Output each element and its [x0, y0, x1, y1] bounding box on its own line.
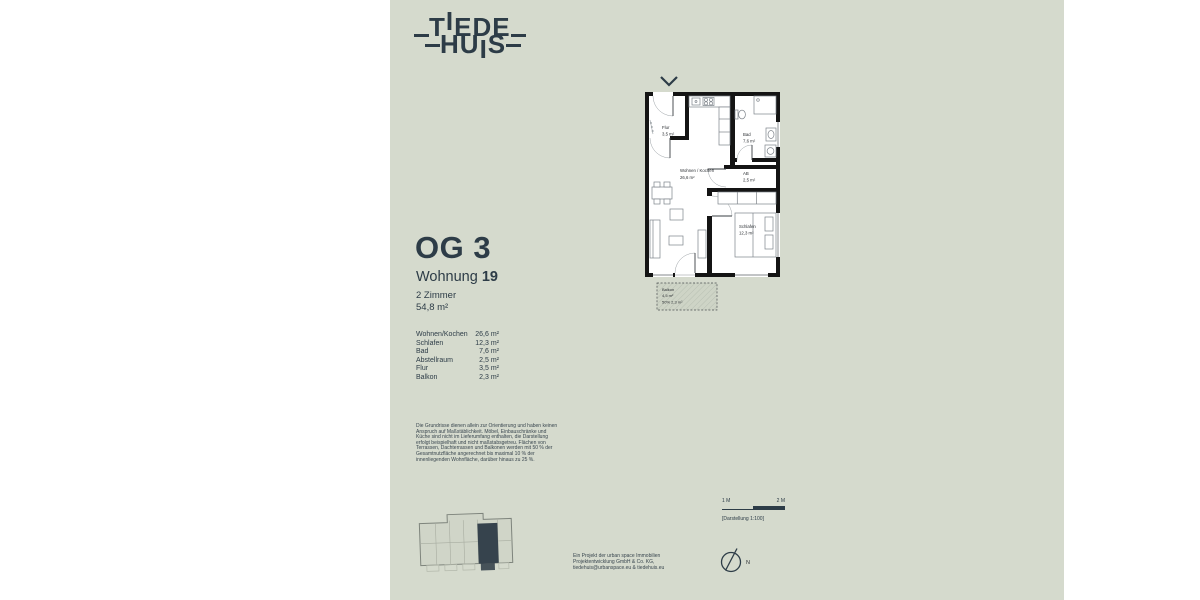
entrance-arrow-icon: [661, 77, 677, 85]
armchair-symbol: [670, 209, 683, 220]
apartment-floorplan: Balkon 4,5 m² 50% 2,3 m²: [640, 72, 790, 315]
table-row: Wohnen/Kochen26,6 m²: [416, 331, 499, 340]
credit-line: tiedehuis@urbanspace.eu & tiedehuis.eu: [573, 566, 664, 572]
north-compass-icon: N: [717, 545, 761, 581]
logo-letter-lowered: I: [480, 36, 488, 62]
balkon-name: Balkon: [662, 287, 674, 292]
scale-left-label: 1 M: [722, 499, 730, 504]
room-label: Bad: [416, 348, 428, 357]
rooms-count: 2 Zimmer: [416, 290, 456, 301]
bad-name: Bad: [743, 132, 751, 137]
balkon-share: 50% 2,3 m²: [662, 300, 683, 305]
wardrobe-symbol: [718, 192, 776, 204]
scale-bar: 1 M 2 M [Darstellung 1:100]: [722, 499, 785, 522]
scale-caption: [Darstellung 1:100]: [722, 516, 785, 522]
room-label: Schlafen: [416, 340, 443, 349]
wohnen-name: Wohnen / Kochen: [680, 168, 715, 173]
sideboard-symbol: [698, 230, 706, 258]
north-label: N: [746, 560, 750, 566]
room-area: 2,5 m²: [479, 357, 499, 366]
shower-symbol: [754, 96, 776, 114]
table-row: Schlafen12,3 m²: [416, 340, 499, 349]
logo-dash-icon: [414, 34, 429, 38]
room-label: Balkon: [416, 374, 437, 383]
table-row: Balkon2,3 m²: [416, 374, 499, 383]
scale-segment-1: [722, 506, 753, 510]
balkon-area: 4,5 m²: [662, 293, 674, 298]
scale-labels: 1 M 2 M: [722, 499, 785, 504]
room-label: Abstellraum: [416, 357, 453, 366]
floorplan-sheet: TIEDE HUIS OG 3 Wohnung 19 2 Zimmer 54,8…: [0, 0, 1200, 600]
sofa-symbol: [650, 220, 660, 258]
building-keyplan: [412, 502, 524, 584]
ab-name: AB: [743, 171, 749, 176]
unit-title: Wohnung 19: [416, 269, 498, 285]
logo-dash-icon: [511, 34, 526, 38]
logo-dash-icon: [425, 44, 440, 48]
room-area: 3,5 m²: [479, 365, 499, 374]
table-row: Bad7,6 m²: [416, 348, 499, 357]
ab-area: 2,5 m²: [743, 178, 756, 183]
room-balkon: Balkon 4,5 m² 50% 2,3 m²: [657, 283, 717, 310]
room-area: 26,6 m²: [475, 331, 499, 340]
room-label: Wohnen/Kochen: [416, 331, 468, 340]
logo-dash-icon: [506, 44, 521, 48]
table-row: Flur3,5 m²: [416, 365, 499, 374]
room-area: 12,3 m²: [475, 340, 499, 349]
schlafen-name: Schlafen: [739, 224, 756, 229]
logo-letter: S: [488, 31, 506, 57]
scale-segment-2: [753, 506, 785, 510]
total-area: 54,8 m²: [416, 302, 448, 313]
room-area: 2,3 m²: [479, 374, 499, 383]
tiedehuis-logo: TIEDE HUIS: [414, 14, 526, 57]
wohnen-area: 26,6 m²: [680, 175, 695, 180]
schlafen-area: 12,3 m²: [739, 231, 754, 236]
toilet-symbol: [735, 110, 745, 119]
disclaimer-text: Die Grundrisse dienen allein zur Orienti…: [416, 424, 559, 463]
room-label: Flur: [416, 365, 428, 374]
project-credit: Ein Projekt der urban space Immobilien P…: [573, 554, 664, 572]
flur-name: Flur: [662, 125, 670, 130]
scale-right-label: 2 M: [777, 499, 785, 504]
logo-letter-raised: I: [446, 8, 454, 34]
bath-sink-symbol: [766, 128, 776, 141]
room-area: 7,6 m²: [479, 348, 499, 357]
floor-title: OG 3: [415, 230, 491, 266]
coffee-table-symbol: [669, 236, 683, 245]
scale-bar-graphic: [722, 506, 785, 510]
washing-machine-symbol: [765, 145, 776, 157]
unit-number: 19: [482, 269, 498, 285]
bad-area: 7,6 m²: [743, 139, 756, 144]
table-row: Abstellraum2,5 m²: [416, 357, 499, 366]
unit-prefix: Wohnung: [416, 269, 482, 285]
flur-area: 3,5 m²: [662, 132, 675, 137]
room-area-table: Wohnen/Kochen26,6 m² Schlafen12,3 m² Bad…: [416, 331, 499, 383]
